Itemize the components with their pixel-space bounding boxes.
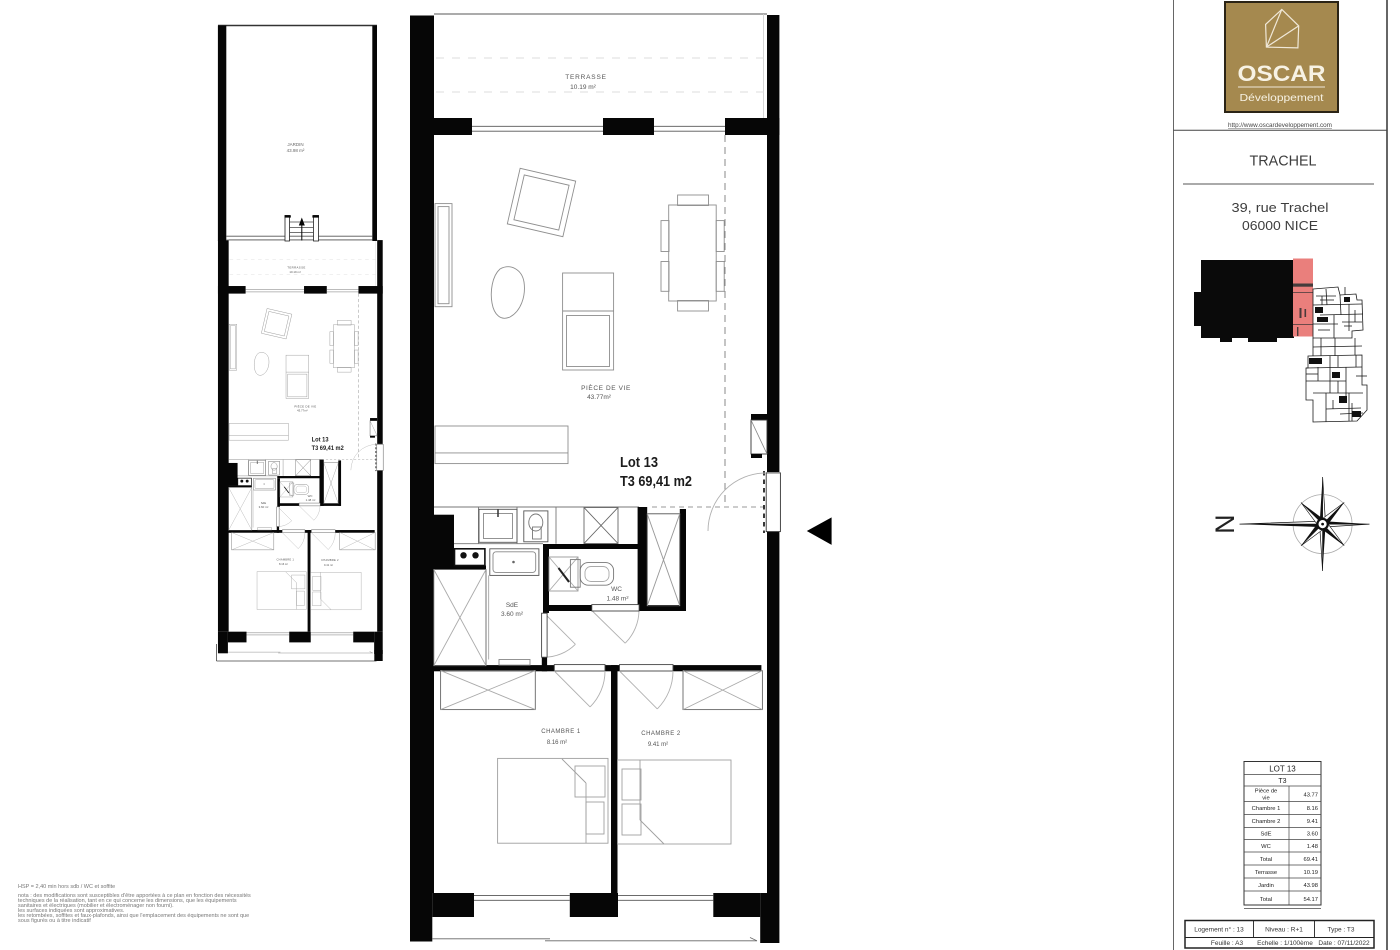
svg-text:3.60: 3.60 bbox=[1307, 832, 1318, 838]
svg-text:9.41 m²: 9.41 m² bbox=[648, 742, 668, 748]
svg-text:Développement: Développement bbox=[1240, 93, 1324, 104]
svg-text:54.17: 54.17 bbox=[1303, 897, 1318, 903]
svg-text:Date : 07/11/2022: Date : 07/11/2022 bbox=[1318, 940, 1370, 947]
svg-text:43.98: 43.98 bbox=[1303, 883, 1318, 889]
svg-text:Total: Total bbox=[1260, 897, 1272, 903]
svg-text:PIÈCE DE VIE: PIÈCE DE VIE bbox=[581, 383, 631, 392]
svg-text:JARDIN: JARDIN bbox=[287, 142, 303, 147]
svg-text:Echelle : 1/100ème: Echelle : 1/100ème bbox=[1257, 940, 1313, 947]
svg-text:LOT 13: LOT 13 bbox=[1269, 765, 1296, 774]
svg-text:06000 NICE: 06000 NICE bbox=[1242, 218, 1318, 233]
svg-text:Niveau : R+1: Niveau : R+1 bbox=[1265, 927, 1303, 934]
svg-text:1.48: 1.48 bbox=[1307, 844, 1318, 850]
svg-text:SdE: SdE bbox=[506, 602, 519, 609]
svg-text:69.41: 69.41 bbox=[1303, 857, 1318, 863]
svg-text:Terrasse: Terrasse bbox=[1255, 870, 1277, 876]
svg-text:T3 69,41 m2: T3 69,41 m2 bbox=[620, 473, 692, 490]
svg-text:Type : T3: Type : T3 bbox=[1328, 927, 1355, 934]
svg-text:10.19 m²: 10.19 m² bbox=[570, 84, 596, 91]
svg-text:9.41: 9.41 bbox=[1307, 819, 1318, 825]
svg-text:43.98 m²: 43.98 m² bbox=[287, 148, 305, 153]
svg-text:8.16 m²: 8.16 m² bbox=[547, 740, 567, 746]
svg-text:vie: vie bbox=[1262, 796, 1269, 802]
svg-text:SdE: SdE bbox=[1261, 832, 1272, 838]
svg-text:Total: Total bbox=[1260, 857, 1272, 863]
svg-text:N: N bbox=[1209, 514, 1239, 534]
svg-text:Chambre 1: Chambre 1 bbox=[1252, 806, 1281, 812]
svg-text:39, rue Trachel: 39, rue Trachel bbox=[1232, 200, 1329, 215]
svg-text:Logement n° : 13: Logement n° : 13 bbox=[1194, 926, 1244, 934]
svg-text:sous figurés ou à titre indica: sous figurés ou à titre indicatif bbox=[18, 918, 91, 924]
svg-text:Lot 13: Lot 13 bbox=[620, 454, 658, 471]
svg-text:WC: WC bbox=[611, 586, 622, 593]
svg-text:Feuille : A3: Feuille : A3 bbox=[1211, 940, 1244, 947]
svg-text:TERRASSE: TERRASSE bbox=[565, 74, 606, 81]
svg-text:8.16: 8.16 bbox=[1307, 806, 1318, 812]
svg-text:HSP = 2,40 min hors sdb / WC e: HSP = 2,40 min hors sdb / WC et soffite bbox=[18, 884, 115, 890]
svg-text:43.77m²: 43.77m² bbox=[587, 394, 612, 401]
svg-text:Jardin: Jardin bbox=[1258, 883, 1274, 889]
svg-text:1.48 m²: 1.48 m² bbox=[606, 596, 629, 603]
svg-text:CHAMBRE 2: CHAMBRE 2 bbox=[641, 731, 681, 737]
svg-text:3.60 m²: 3.60 m² bbox=[501, 611, 524, 618]
svg-text:10.19: 10.19 bbox=[1303, 870, 1318, 876]
svg-text:CHAMBRE 1: CHAMBRE 1 bbox=[541, 729, 581, 735]
svg-text:TRACHEL: TRACHEL bbox=[1250, 153, 1317, 170]
svg-text:Pièce de: Pièce de bbox=[1255, 789, 1278, 795]
svg-text:43.77: 43.77 bbox=[1303, 793, 1318, 799]
svg-text:OSCAR: OSCAR bbox=[1238, 61, 1326, 86]
svg-text:WC: WC bbox=[1261, 844, 1271, 850]
svg-text:T3: T3 bbox=[1278, 778, 1286, 785]
svg-text:Chambre 2: Chambre 2 bbox=[1252, 819, 1281, 825]
